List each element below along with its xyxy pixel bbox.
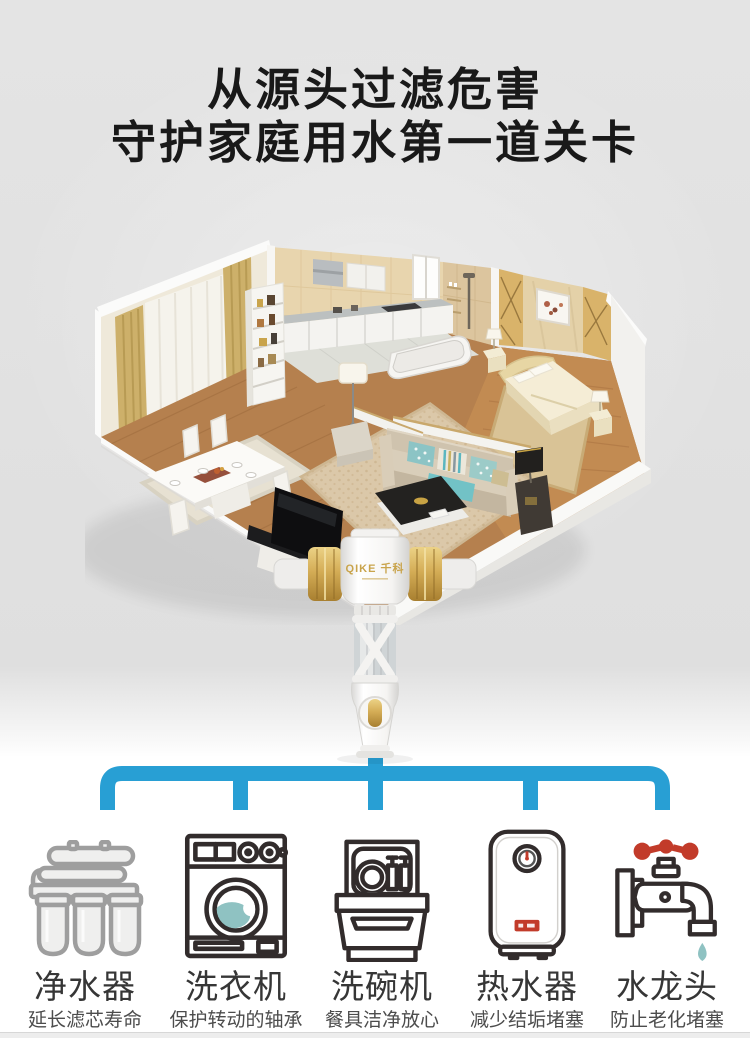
appliance-name: 净水器 — [34, 968, 136, 1006]
filter-chamber — [352, 615, 398, 683]
water-drop — [698, 943, 707, 961]
drain-knob — [368, 699, 382, 727]
appliance-name: 热水器 — [476, 968, 578, 1006]
wall-artwork — [537, 289, 569, 325]
appliance-desc: 保护转动的轴承 — [169, 1009, 302, 1032]
promo-banner: 从源头过滤危害 守护家庭用水第一道关卡 — [0, 0, 750, 1038]
appliance-item-faucet: 水龙头 防止老化堵塞 — [587, 820, 747, 1032]
appliance-row: 净水器 延长滤芯寿命 — [0, 820, 750, 1032]
appliance-name: 洗衣机 — [185, 968, 287, 1006]
headline-line-2: 守护家庭用水第一道关卡 — [0, 117, 750, 170]
appliance-desc: 防止老化堵塞 — [610, 1009, 724, 1032]
water-purifier-icon — [24, 840, 146, 962]
appliance-desc: 延长滤芯寿命 — [28, 1009, 142, 1032]
prefilter-product: QIKE 千科 — [270, 523, 480, 765]
appliance-item-water-purifier: 净水器 延长滤芯寿命 — [5, 820, 165, 1032]
ottoman — [331, 421, 373, 467]
appliance-desc: 减少结垢堵塞 — [470, 1009, 584, 1032]
headline-line-1: 从源头过滤危害 — [0, 64, 750, 117]
dishwasher-icon — [320, 834, 444, 962]
appliance-name: 洗碗机 — [331, 968, 433, 1006]
section-divider — [0, 1032, 750, 1038]
washing-machine-icon — [173, 830, 299, 962]
appliance-item-dishwasher: 洗碗机 餐具洁净放心 — [302, 820, 462, 1032]
brass-nut-left — [308, 547, 342, 601]
shower-head — [463, 273, 475, 278]
brass-nut-right — [408, 547, 442, 601]
appliance-item-washing-machine: 洗衣机 保护转动的轴承 — [156, 820, 316, 1032]
water-heater-icon — [466, 826, 588, 962]
headline: 从源头过滤危害 守护家庭用水第一道关卡 — [0, 64, 750, 170]
appliance-name: 水龙头 — [616, 968, 718, 1006]
brand-logo: QIKE 千科 — [346, 561, 405, 575]
appliance-item-water-heater: 热水器 减少结垢堵塞 — [447, 820, 607, 1032]
faucet-icon — [605, 836, 729, 962]
bookshelf — [245, 283, 285, 407]
appliance-desc: 餐具洁净放心 — [325, 1009, 439, 1032]
